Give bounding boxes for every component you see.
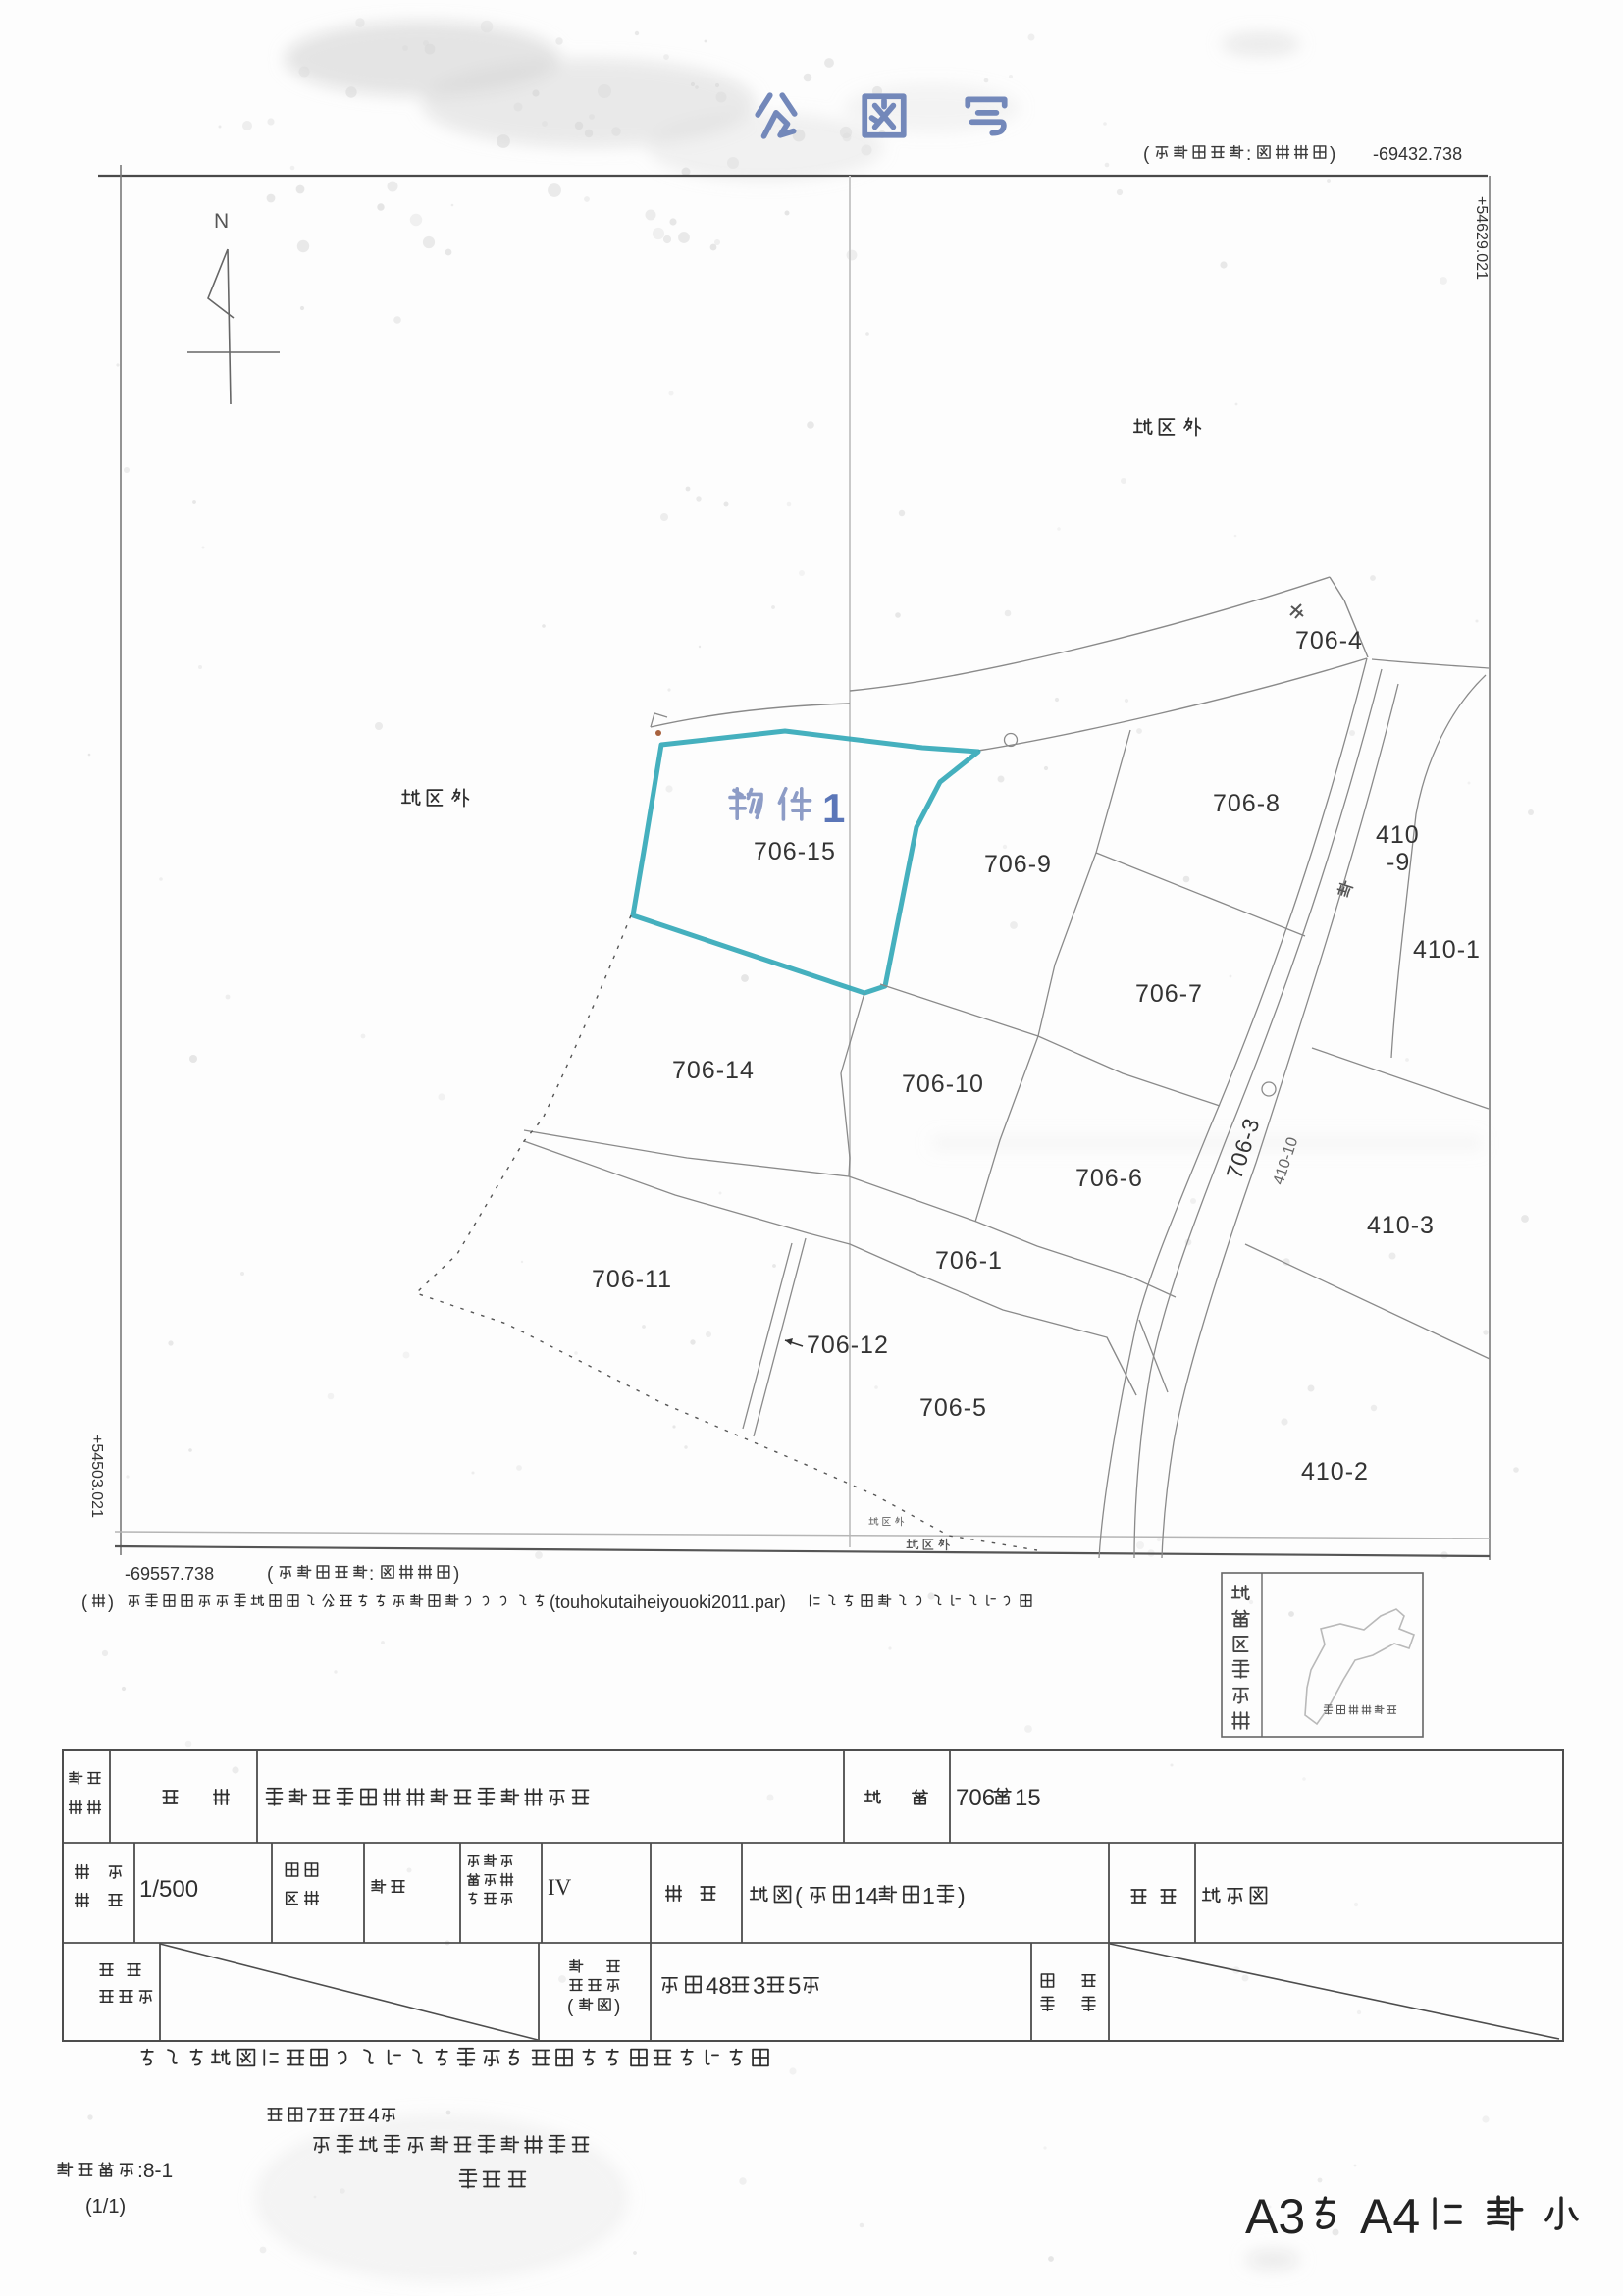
svg-text::: : (369, 1564, 374, 1585)
svg-text:1: 1 (922, 1883, 935, 1908)
svg-text:410: 410 (1376, 821, 1420, 849)
svg-text:706-7: 706-7 (1135, 980, 1203, 1008)
svg-text:706-14: 706-14 (672, 1057, 755, 1084)
svg-text:(: ( (1143, 144, 1150, 165)
svg-text:IV: IV (548, 1875, 572, 1900)
svg-text:706-15: 706-15 (754, 838, 836, 865)
svg-text:(: ( (567, 1997, 574, 2017)
svg-text:15: 15 (1015, 1785, 1041, 1811)
svg-text:410-2: 410-2 (1301, 1458, 1369, 1486)
svg-text:): ) (614, 1997, 620, 2017)
svg-text:): ) (1330, 144, 1335, 165)
svg-text:-9: -9 (1387, 849, 1410, 876)
svg-text:706-8: 706-8 (1213, 790, 1281, 817)
svg-text:3: 3 (753, 1973, 765, 2000)
svg-text:A3: A3 (1245, 2189, 1305, 2244)
svg-text:(: ( (81, 1592, 87, 1612)
svg-text:4: 4 (368, 2105, 380, 2127)
svg-text:5: 5 (788, 1973, 801, 2000)
svg-text:706: 706 (956, 1785, 995, 1811)
svg-text:7: 7 (306, 2105, 318, 2127)
svg-text:410-3: 410-3 (1367, 1212, 1435, 1239)
svg-text:1: 1 (822, 785, 845, 831)
svg-text:): ) (453, 1564, 459, 1585)
svg-text:706-4: 706-4 (1295, 627, 1363, 654)
svg-text:48: 48 (706, 1973, 732, 2000)
svg-text:): ) (958, 1883, 966, 1908)
svg-text:A4: A4 (1360, 2189, 1420, 2244)
svg-text:(: ( (267, 1564, 274, 1585)
svg-text:-69432.738: -69432.738 (1373, 144, 1462, 164)
svg-text:7: 7 (338, 2105, 349, 2127)
svg-text:(: ( (795, 1883, 803, 1908)
svg-text:(touhokutaiheiyouoki2011.par): (touhokutaiheiyouoki2011.par) (550, 1592, 786, 1612)
svg-text:706-5: 706-5 (919, 1394, 987, 1422)
svg-text:N: N (214, 210, 229, 233)
svg-text:+54503.021: +54503.021 (88, 1435, 105, 1518)
svg-text:706-6: 706-6 (1075, 1165, 1143, 1192)
svg-text:706-12: 706-12 (807, 1331, 889, 1359)
svg-text::8-1: :8-1 (137, 2160, 173, 2182)
svg-text:-69557.738: -69557.738 (125, 1564, 214, 1584)
svg-text:1/500: 1/500 (139, 1876, 198, 1903)
svg-text:706-11: 706-11 (592, 1266, 672, 1293)
svg-text:706-9: 706-9 (984, 851, 1052, 878)
svg-text:+54629.021: +54629.021 (1473, 196, 1490, 280)
svg-text:14: 14 (854, 1883, 879, 1908)
svg-text:706-10: 706-10 (902, 1070, 984, 1098)
svg-text:): ) (108, 1592, 114, 1612)
svg-text:706-1: 706-1 (935, 1247, 1003, 1275)
svg-text:410-1: 410-1 (1413, 936, 1481, 964)
svg-text::: : (1246, 144, 1251, 165)
svg-text:(1/1): (1/1) (85, 2196, 126, 2218)
